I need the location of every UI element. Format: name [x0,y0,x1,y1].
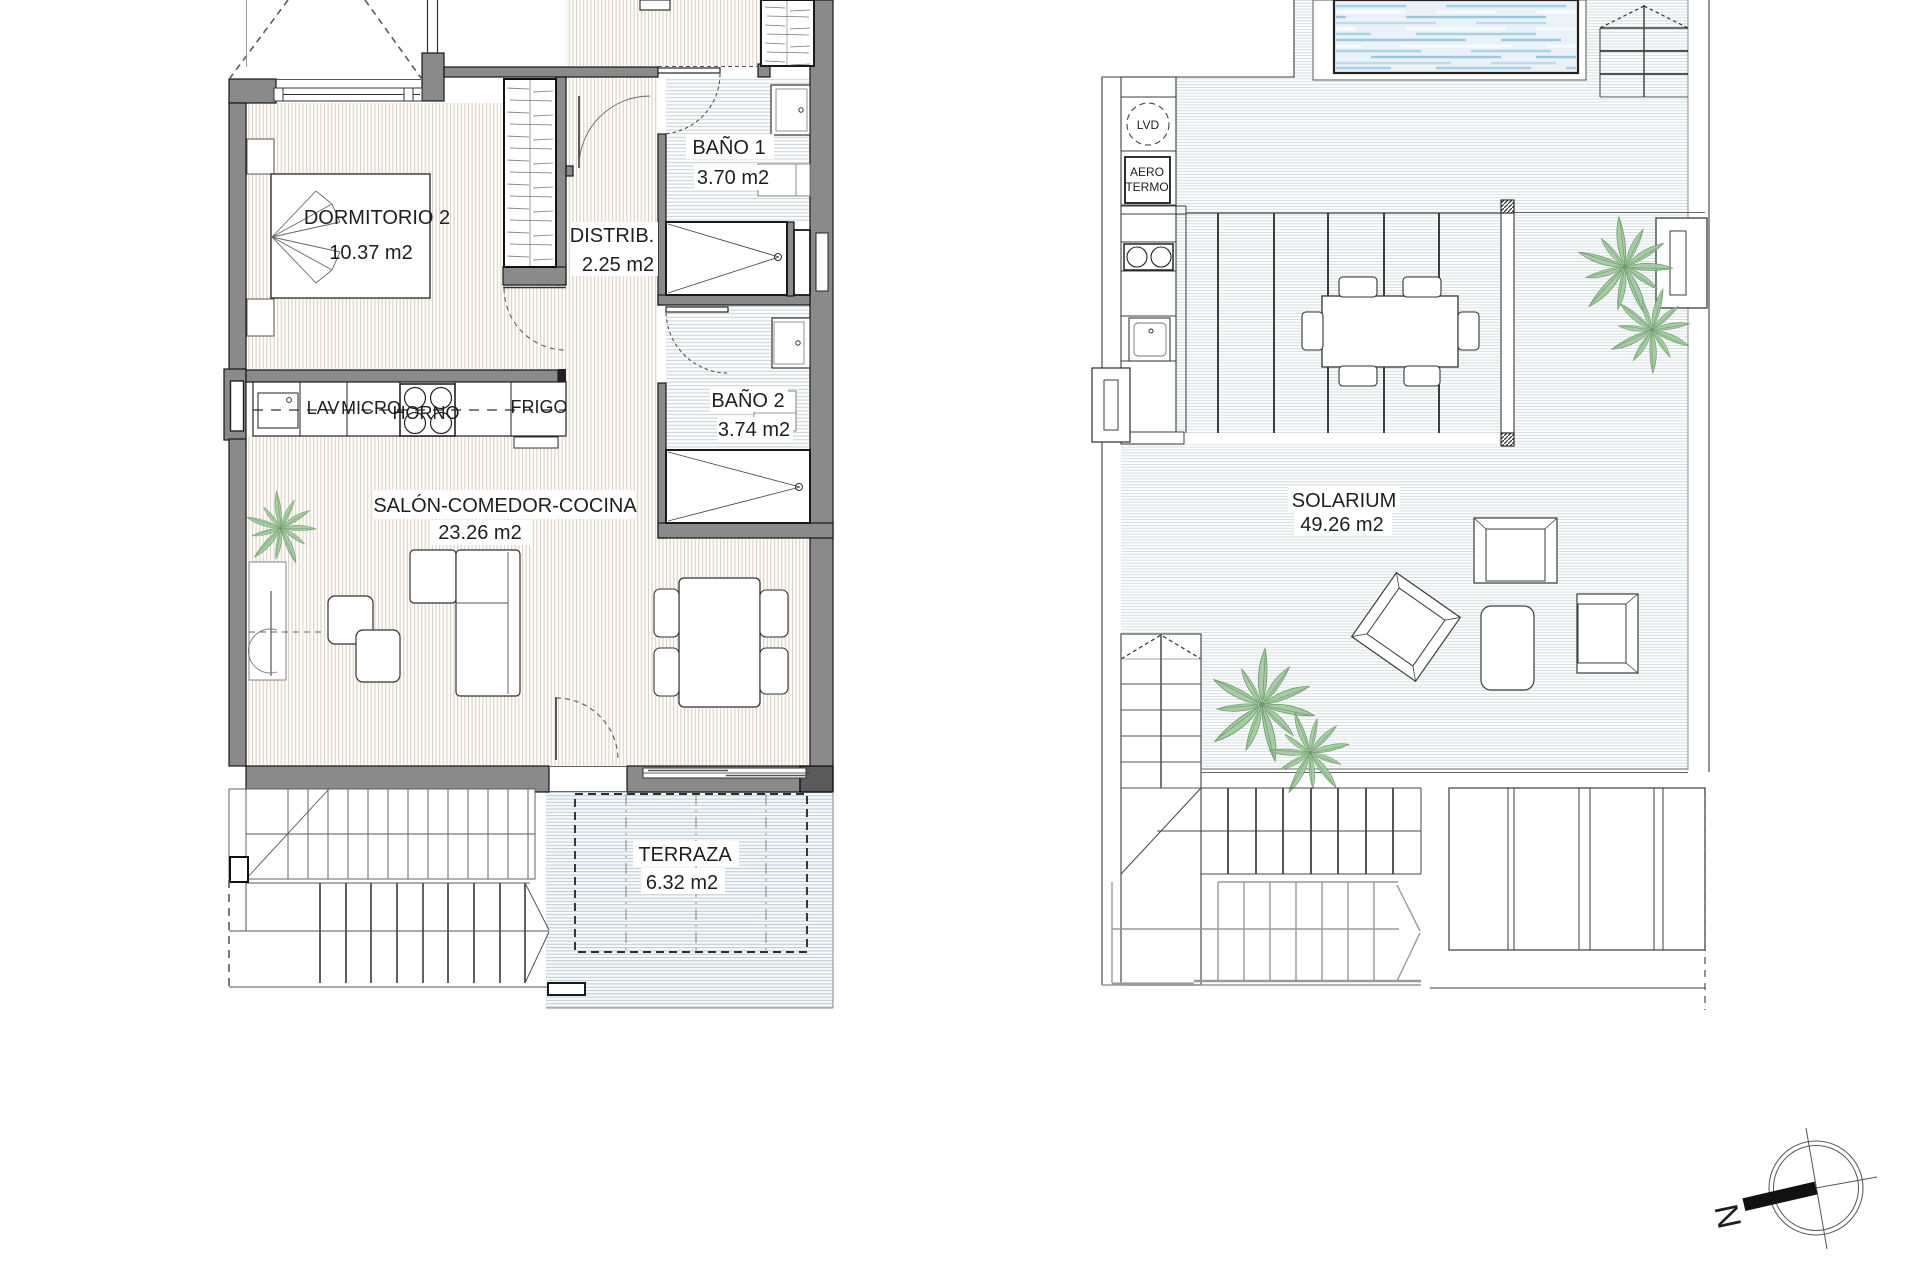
svg-text:49.26 m2: 49.26 m2 [1300,514,1383,536]
svg-text:BAÑO 1: BAÑO 1 [692,135,765,159]
svg-text:LVD: LVD [1137,118,1160,132]
svg-text:LAV: LAV [307,398,340,418]
svg-text:3.70 m2: 3.70 m2 [697,167,769,189]
svg-text:23.26 m2: 23.26 m2 [438,522,521,544]
svg-text:3.74 m2: 3.74 m2 [718,419,790,441]
svg-text:6.32 m2: 6.32 m2 [646,872,718,894]
svg-text:2.25 m2: 2.25 m2 [582,254,654,276]
svg-text:TERMO: TERMO [1125,180,1168,194]
svg-text:SALÓN-COMEDOR-COCINA: SALÓN-COMEDOR-COCINA [373,494,637,517]
svg-text:AERO: AERO [1130,165,1164,179]
svg-text:FRIGO: FRIGO [511,397,568,417]
svg-text:HORNO: HORNO [393,403,460,423]
svg-text:BAÑO 2: BAÑO 2 [711,388,784,412]
svg-text:DISTRIB.: DISTRIB. [570,225,654,247]
svg-text:10.37 m2: 10.37 m2 [329,242,412,264]
svg-text:SOLARIUM: SOLARIUM [1292,490,1396,512]
svg-text:DORMITORIO 2: DORMITORIO 2 [304,207,450,229]
svg-text:TERRAZA: TERRAZA [638,844,732,866]
